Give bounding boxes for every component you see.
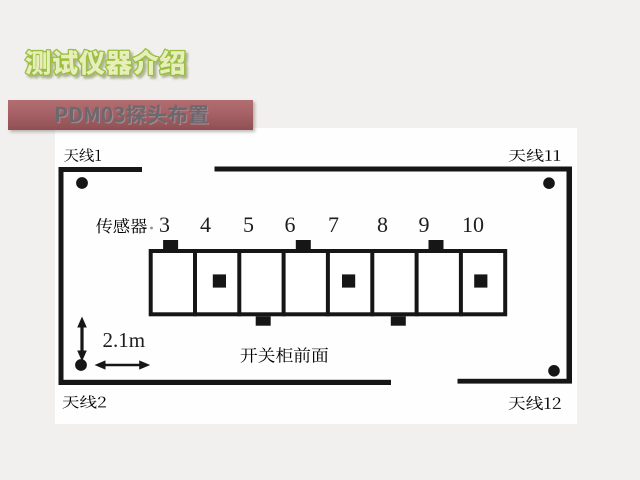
svg-text:2.1m: 2.1m <box>103 328 146 352</box>
svg-text:10: 10 <box>462 212 484 237</box>
svg-text:4: 4 <box>200 212 211 237</box>
svg-text:6: 6 <box>285 212 296 237</box>
svg-text:5: 5 <box>243 212 254 237</box>
svg-text:7: 7 <box>328 212 339 237</box>
svg-text:9: 9 <box>419 212 430 237</box>
svg-text:8: 8 <box>377 212 388 237</box>
svg-text:3: 3 <box>159 212 170 237</box>
